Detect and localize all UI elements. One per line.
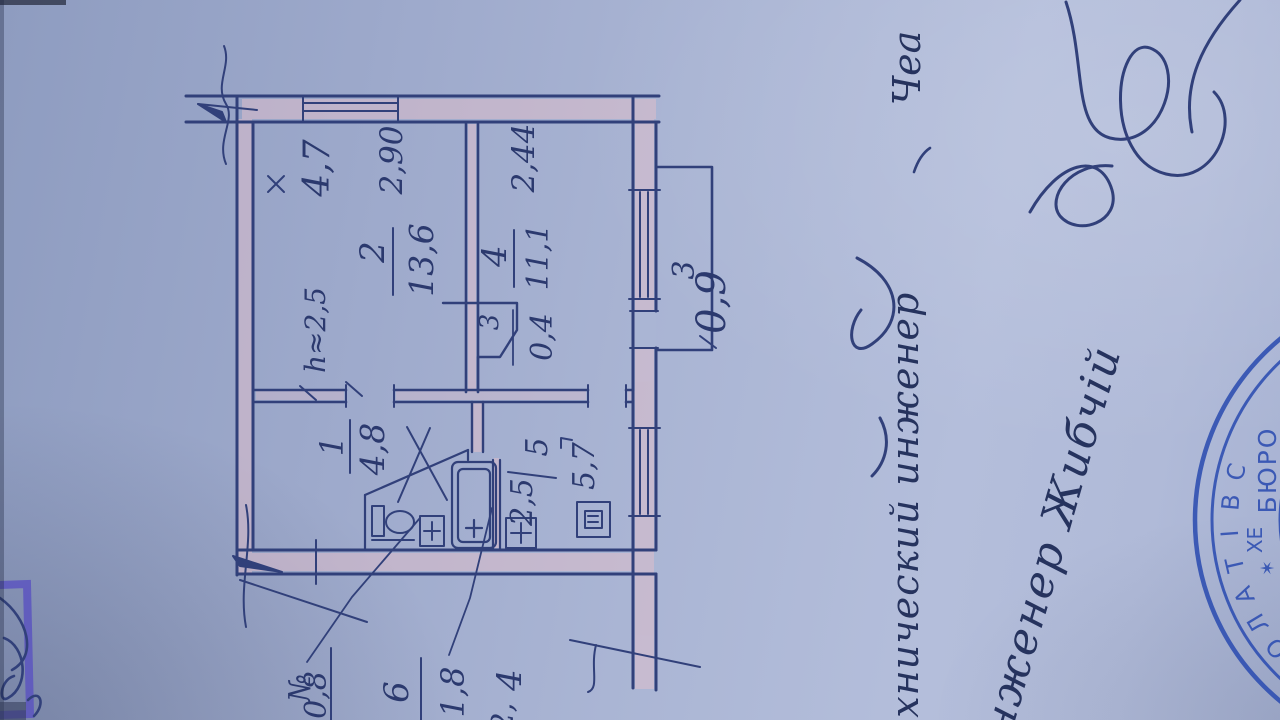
- handwriting-line2: инженер Жибчій: [963, 340, 1131, 720]
- rect-stamp: [0, 584, 41, 716]
- round-stamp: О Л А Т І В С БЮРО ХЕ ✶: [1195, 285, 1280, 720]
- toilet-icon: [372, 506, 414, 540]
- leader-line: [449, 508, 492, 655]
- stamp-letter: Т: [1220, 554, 1251, 576]
- photo-edge-shadow: [0, 702, 26, 720]
- stamp-letter: Л: [1241, 608, 1274, 638]
- room4-area: 11,1: [521, 224, 556, 291]
- wall-break-marks: [198, 46, 700, 692]
- room2-number: 2: [353, 241, 393, 264]
- stamp-letter: С: [1221, 461, 1252, 484]
- balcony-door-gap: [633, 311, 656, 348]
- photo-edge-shadow: [0, 0, 4, 720]
- sink-icon: [420, 516, 444, 546]
- room4-number: 4: [475, 245, 515, 268]
- stamp-letter: А: [1228, 582, 1260, 608]
- kitchen-area: 5,7: [567, 441, 602, 490]
- edge-fragment-1: 0,8: [299, 671, 334, 719]
- photographed-floorplan-document: 4,7 2,90 2,44 2 13,6 4 11,1 h≈2,5 3 0,4 …: [0, 0, 1280, 720]
- stamp-star: ✶: [1257, 560, 1279, 576]
- stamp-inner-word: БЮРО: [1253, 427, 1280, 514]
- dim-room4-width: 2,44: [506, 123, 542, 193]
- room2-area: 13,6: [402, 223, 441, 296]
- floor-plan-drawing: 4,7 2,90 2,44 2 13,6 4 11,1 h≈2,5 3 0,4 …: [0, 0, 1280, 720]
- hall-number: 1: [313, 436, 351, 456]
- bathtub-icon: [452, 462, 496, 548]
- edge-fragment-2: 6: [377, 681, 417, 703]
- handwriting-top-fragment: Чеа: [885, 31, 929, 106]
- door-swing-lines: [398, 427, 447, 502]
- rect-stamp-scribble: [0, 598, 41, 716]
- bath-area: 2,5: [505, 478, 540, 527]
- balcony-area: 0,9: [689, 270, 735, 334]
- edge-fragment-4: 4: [490, 669, 530, 692]
- handwriting-line1: технический инженер: [883, 292, 927, 720]
- balcony-label-dash: [700, 336, 716, 348]
- ceiling-height-note: h≈2,5: [299, 287, 332, 373]
- closet-area: 0,4: [525, 313, 560, 361]
- handwritten-annotations: Чеа технический инженер инженер Жибчій: [852, 0, 1240, 720]
- bath-fraction-bar: [508, 472, 556, 478]
- stamp-letter: В: [1216, 493, 1245, 512]
- closet-number: 3: [475, 314, 505, 331]
- stamp-letter: І: [1216, 529, 1244, 538]
- handwriting-dash: [914, 148, 930, 172]
- dim-top-left: 4,7: [297, 139, 338, 197]
- stamp-inner-small: ХЕ: [1243, 527, 1267, 553]
- hall-area: 4,8: [353, 423, 392, 476]
- dim-room2-width: 2,90: [374, 125, 410, 195]
- edge-fragment-5: 2,: [486, 703, 521, 720]
- bath-number: 5: [520, 437, 555, 456]
- photo-edge-shadow: [0, 0, 66, 5]
- edge-fragment-3: 1,8: [434, 667, 472, 718]
- vent-shaft-icon: [577, 502, 610, 537]
